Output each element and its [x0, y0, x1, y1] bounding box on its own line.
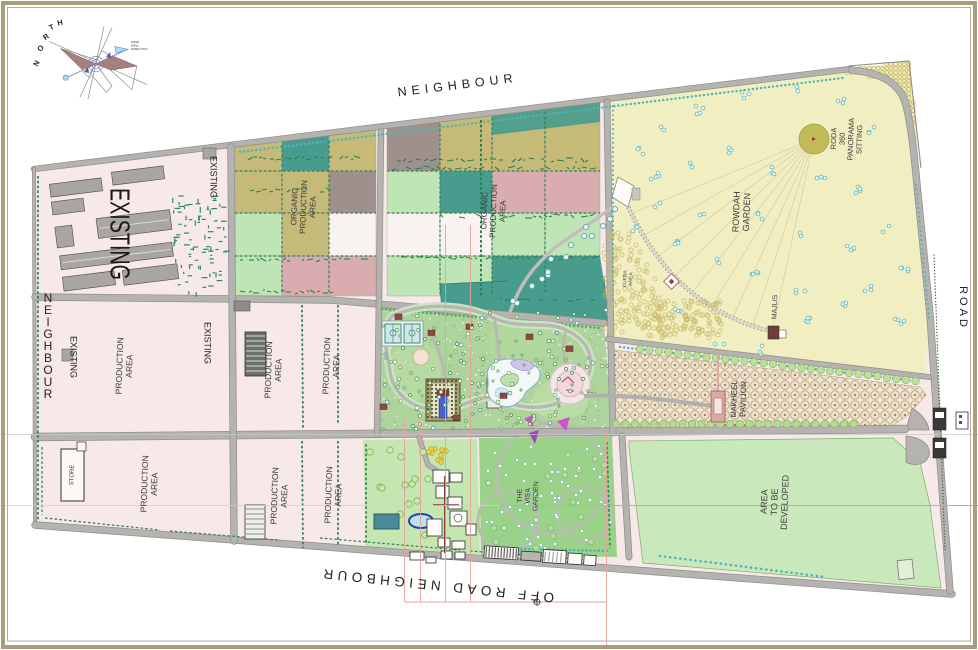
svg-text:ROAD: ROAD: [957, 286, 969, 330]
svg-text:STORE: STORE: [69, 465, 76, 486]
svg-text:EXISTING: EXISTING: [209, 156, 219, 198]
svg-text:AREA: AREA: [498, 200, 508, 223]
svg-text:AREA: AREA: [331, 354, 342, 378]
svg-text:GARDEN: GARDEN: [532, 481, 540, 511]
svg-text:AREA: AREA: [759, 489, 770, 514]
svg-text:AREA: AREA: [273, 358, 284, 382]
svg-text:AREA: AREA: [628, 272, 634, 286]
svg-text:R: R: [44, 387, 53, 401]
svg-text:DEVELOPED: DEVELOPED: [779, 474, 791, 530]
svg-text:AREA: AREA: [124, 354, 135, 378]
svg-text:EXISTING: EXISTING: [105, 188, 136, 280]
svg-text:DIRECTION: DIRECTION: [131, 47, 148, 51]
svg-text:EXISTING: EXISTING: [203, 322, 213, 364]
svg-text:SITTING: SITTING: [854, 124, 864, 154]
svg-text:THE: THE: [517, 488, 524, 503]
svg-text:PAVILION: PAVILION: [738, 381, 748, 417]
svg-text:MAJLIS: MAJLIS: [771, 294, 779, 319]
svg-text:VISA: VISA: [525, 488, 533, 505]
svg-text:EXISTING: EXISTING: [69, 336, 79, 378]
svg-text:TO BE: TO BE: [769, 488, 780, 515]
svg-text:GARDEN: GARDEN: [741, 193, 752, 232]
svg-text:AREA: AREA: [279, 484, 290, 508]
svg-text:AREA: AREA: [333, 483, 344, 507]
svg-text:AREA: AREA: [149, 472, 160, 496]
svg-text:AREA: AREA: [308, 196, 318, 219]
